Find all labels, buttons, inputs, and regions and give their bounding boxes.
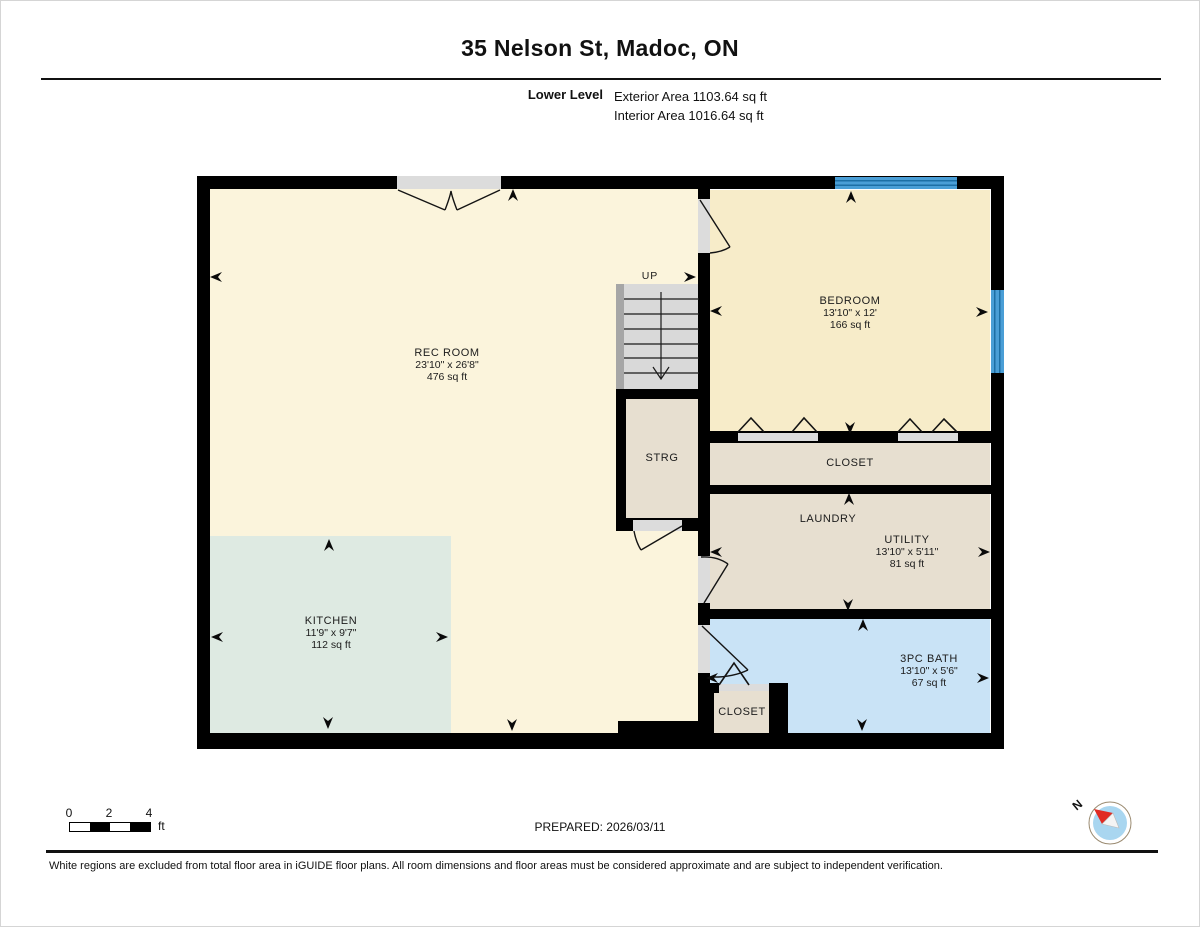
room-dims: 13'10" x 5'6" (900, 665, 958, 677)
scale-tick: 4 (146, 806, 153, 820)
door-opening-bath (698, 625, 710, 673)
disclaimer-text: White regions are excluded from total fl… (49, 860, 943, 872)
room-name: KITCHEN (305, 615, 357, 627)
wall (698, 485, 1004, 494)
room-area: 476 sq ft (414, 371, 479, 383)
wall (991, 176, 1004, 749)
floor-plan-page: 35 Nelson St, Madoc, ON Lower Level Exte… (0, 0, 1200, 927)
room-label-utility: UTILITY 13'10" x 5'11" 81 sq ft (876, 534, 939, 570)
room-area: 166 sq ft (819, 319, 880, 331)
door-opening-laundry (698, 556, 710, 603)
prepared-date: PREPARED: 2026/03/11 (1, 820, 1199, 834)
stairs-up-label: UP (642, 270, 659, 282)
room-label-laundry: LAUNDRY (800, 513, 857, 525)
wall (616, 389, 626, 531)
room-dims: 11'9" x 9'7" (305, 627, 357, 639)
room-dims: 13'10" x 5'11" (876, 546, 939, 558)
wall (618, 721, 704, 733)
wall (197, 733, 1004, 749)
room-label-strg: STRG (646, 452, 679, 464)
room-laundry-utility (710, 494, 990, 609)
room-area: 67 sq ft (900, 677, 958, 689)
room-label-closet-upper: CLOSET (826, 457, 874, 469)
door-opening-strg (633, 520, 682, 531)
wall (769, 683, 788, 733)
wall (197, 176, 210, 749)
room-name: BEDROOM (819, 295, 880, 307)
room-name: UTILITY (876, 534, 939, 546)
wall (698, 609, 1004, 619)
room-label-rec-room: REC ROOM 23'10" x 26'8" 476 sq ft (414, 347, 479, 383)
room-dims: 23'10" x 26'8" (414, 359, 479, 371)
room-dims: 13'10" x 12' (819, 307, 880, 319)
interior-area: Interior Area 1016.64 sq ft (614, 106, 767, 125)
wall (616, 389, 699, 399)
room-name: 3PC BATH (900, 653, 958, 665)
room-label-bedroom: BEDROOM 13'10" x 12' 166 sq ft (819, 295, 880, 331)
window (991, 290, 1004, 373)
door-opening-bedroom (698, 199, 710, 253)
stairs-edge (616, 284, 624, 389)
north-label: N (1070, 797, 1086, 813)
room-area: 81 sq ft (876, 558, 939, 570)
window (835, 177, 957, 189)
door-opening-double (397, 176, 501, 189)
page-title: 35 Nelson St, Madoc, ON (1, 35, 1199, 62)
room-area: 112 sq ft (305, 639, 357, 651)
bifold-opening-closet (898, 433, 958, 441)
scale-tick: 2 (106, 806, 113, 820)
bifold-opening-closet (738, 433, 818, 441)
scale-tick: 0 (66, 806, 73, 820)
level-label: Lower Level (1, 87, 603, 102)
area-summary: Exterior Area 1103.64 sq ft Interior Are… (614, 87, 767, 125)
footer-divider (46, 850, 1158, 853)
room-label-bath: 3PC BATH 13'10" x 5'6" 67 sq ft (900, 653, 958, 689)
header-divider (41, 78, 1161, 80)
bifold-opening-closet-lower (719, 684, 769, 691)
room-name: REC ROOM (414, 347, 479, 359)
exterior-area: Exterior Area 1103.64 sq ft (614, 87, 767, 106)
room-label-kitchen: KITCHEN 11'9" x 9'7" 112 sq ft (305, 615, 357, 651)
stairs-area (616, 284, 699, 389)
wall (701, 689, 714, 733)
room-label-closet-lower: CLOSET (718, 706, 766, 718)
